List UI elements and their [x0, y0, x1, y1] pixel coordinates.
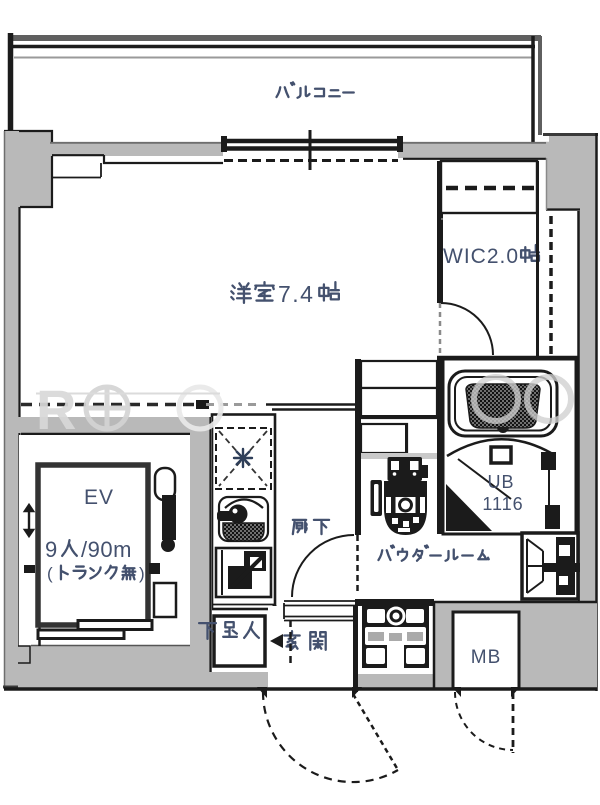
svg-text:WIC2.0: WIC2.0	[443, 245, 519, 268]
svg-text:): )	[139, 564, 145, 583]
svg-text:MB: MB	[471, 647, 502, 668]
svg-text:UB: UB	[487, 472, 514, 492]
svg-text:/90m: /90m	[81, 537, 132, 562]
svg-text:1116: 1116	[482, 494, 523, 514]
svg-text:9: 9	[45, 537, 57, 562]
svg-text:R: R	[36, 378, 76, 441]
svg-text:7.4: 7.4	[278, 281, 314, 307]
svg-text:EV: EV	[84, 486, 114, 509]
svg-text:(: (	[47, 564, 53, 583]
